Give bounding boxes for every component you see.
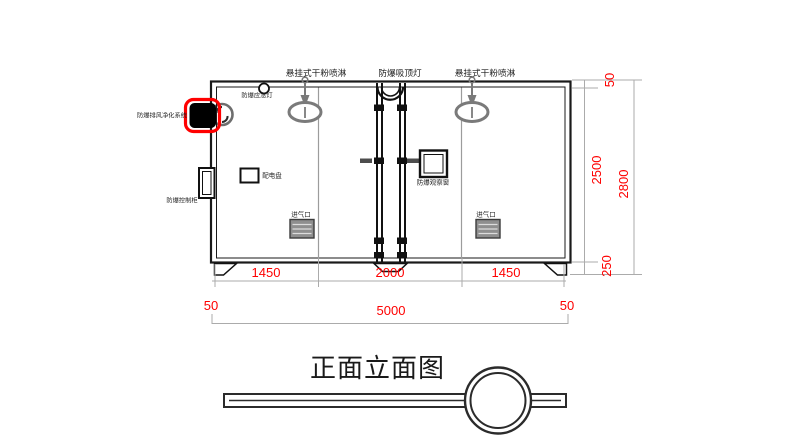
dim-total-width: 5000 <box>361 304 421 318</box>
sprinkler-left-label: 悬挂式干粉喷淋 <box>286 69 346 78</box>
air-inlet-right-label: 进气口 <box>476 211 495 218</box>
exhaust-system-label: 防爆排风净化系统 <box>137 112 187 119</box>
air-inlet-left-label: 进气口 <box>291 211 310 218</box>
dim-offset-right: 50 <box>537 299 597 313</box>
distribution-panel-label: 配电盘 <box>262 172 281 179</box>
drawing-title: 正面立面图 <box>297 354 458 384</box>
air-inlet-grille-right <box>476 220 500 239</box>
distribution-panel-icon <box>241 169 259 183</box>
exhaust-unit-highlight <box>186 100 220 132</box>
dim-bottom-segment-center: 2000 <box>360 266 420 280</box>
ceiling-lamp-label: 防爆吸顶灯 <box>378 69 421 78</box>
air-inlet-grille-left <box>290 220 314 239</box>
observation-window-icon <box>420 151 447 178</box>
dim-bottom-segment-left: 1450 <box>236 266 296 280</box>
dim-right-top-offset: 50 <box>603 50 617 110</box>
dim-offset-left: 50 <box>181 299 241 313</box>
control-cabinet-label: 防爆控制柜 <box>166 197 197 204</box>
observation-window-label: 防爆观察窗 <box>417 179 449 186</box>
emergency-lamp-label: 防爆应急灯 <box>241 92 272 99</box>
door-frame-columns <box>360 83 419 262</box>
dimension-lines <box>212 80 642 324</box>
control-cabinet-icon <box>199 168 215 198</box>
dim-bottom-segment-right: 1450 <box>476 266 536 280</box>
sprinkler-left-icon <box>289 77 321 121</box>
sprinkler-right-icon <box>456 77 488 121</box>
dim-right-body-height: 2500 <box>590 140 604 200</box>
dim-right-total-height: 2800 <box>617 154 631 214</box>
dim-right-base-height: 250 <box>600 236 614 296</box>
elevation-drawing-page: 悬挂式干粉喷淋 防爆吸顶灯 悬挂式干粉喷淋 防爆应急灯 防爆排风净化系统 防爆控… <box>0 0 800 445</box>
sprinkler-right-label: 悬挂式干粉喷淋 <box>455 69 515 78</box>
